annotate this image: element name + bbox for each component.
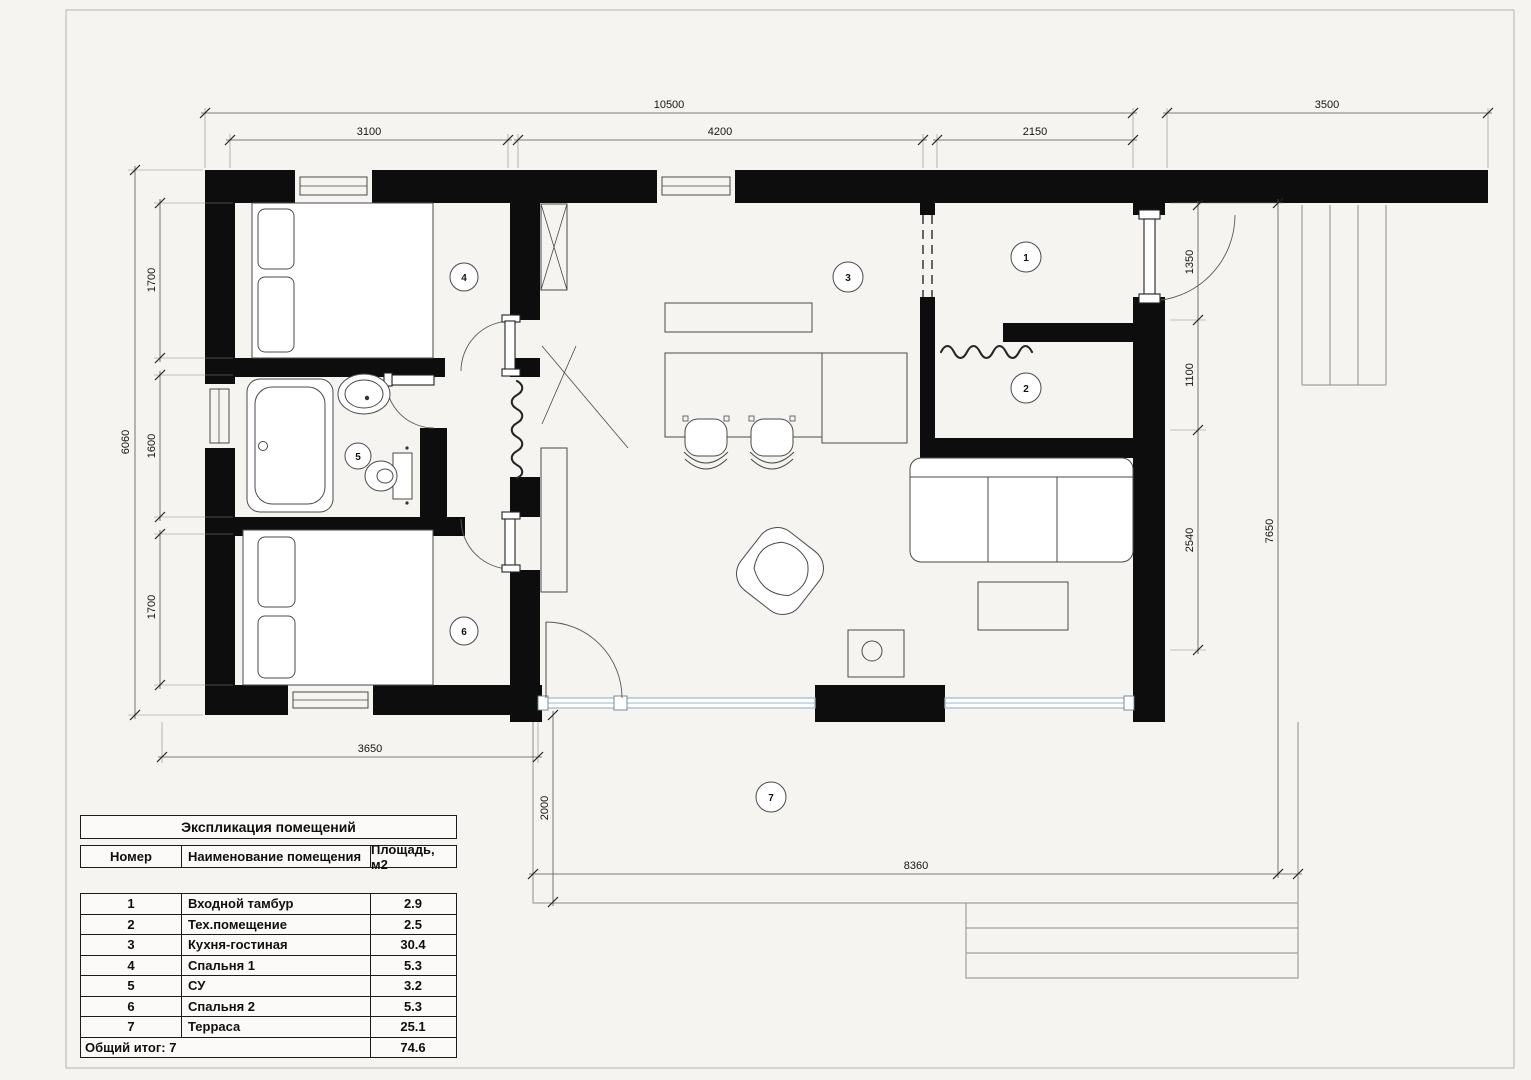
opening-dashed [923,215,932,297]
room-name-cell: Спальня 1 [182,956,371,976]
table-total-row: Общий итог: 7 74.6 [81,1038,456,1058]
table-row: 4 Спальня 1 5.3 [81,956,456,977]
pillow [258,537,295,607]
dim-3650: 3650 [358,743,382,755]
dim-1600: 1600 [146,434,158,458]
dim-1350: 1350 [1184,250,1196,274]
room-area-cell: 30.4 [371,935,455,955]
drawing-sheet: 1 2 3 4 5 6 7 [0,0,1531,1080]
room-area-cell: 2.5 [371,915,455,935]
room-marker-3: 3 [833,262,863,292]
leaf-diagonal [542,346,576,424]
legend-header: Номер Наименование помещения Площадь, м2 [80,845,457,868]
total-label: Общий итог: 7 [81,1038,371,1058]
room-number: 3 [845,273,851,284]
room-number: 4 [461,273,467,284]
dim-3100: 3100 [357,126,381,138]
wardrobe [541,448,567,592]
sink [338,374,390,414]
legend-title: Экспликация помещений [80,815,457,839]
dim-2150: 2150 [1023,126,1047,138]
toilet [365,446,412,504]
coffee-table [978,582,1068,630]
room-marker-5: 5 [345,443,371,469]
dim-2540: 2540 [1184,528,1196,552]
room-name-cell: СУ [182,976,371,996]
bed-1 [252,203,433,358]
room-name-cell: Кухня-гостиная [182,935,371,955]
opening-wave-techroom [941,346,1032,358]
opening-wave-corridor [512,381,523,478]
kitchen-counter [665,303,812,332]
dim-8360: 8360 [904,860,928,872]
pillow [258,277,294,352]
legend-col-number: Номер [81,846,182,867]
room-number: 2 [1023,384,1029,395]
pillow [258,209,294,269]
stove [848,630,904,677]
room-number-cell: 6 [81,997,182,1017]
bathtub [247,379,333,512]
pillow [258,616,295,678]
legend-col-name: Наименование помещения [182,846,371,867]
room-area-cell: 5.3 [371,997,455,1017]
room-number: 7 [768,793,774,804]
room-number-cell: 1 [81,894,182,914]
room-number-cell: 3 [81,935,182,955]
room-name-cell: Спальня 2 [182,997,371,1017]
armchair [728,519,832,623]
room-name-cell: Тех.помещение [182,915,371,935]
room-marker-2: 2 [1011,373,1041,403]
table-row: 1 Входной тамбур 2.9 [81,894,456,915]
dim-7650: 7650 [1264,519,1276,543]
dim-6060: 6060 [120,430,132,454]
table-row: 6 Спальня 2 5.3 [81,997,456,1018]
door-bathroom [384,373,434,428]
bar-stool [683,416,729,469]
room-area-cell: 3.2 [371,976,455,996]
room-number: 1 [1023,253,1029,264]
bar-stool [749,416,795,469]
sofa [910,458,1133,562]
room-number-cell: 2 [81,915,182,935]
dim-3500: 3500 [1315,99,1339,111]
room-marker-6: 6 [450,617,478,645]
legend-body: 1 Входной тамбур 2.9 2 Тех.помещение 2.5… [80,893,457,1058]
room-marker-4: 4 [450,263,478,291]
room-number-cell: 7 [81,1017,182,1037]
bed-2 [243,530,433,685]
table-row: 5 СУ 3.2 [81,976,456,997]
room-number: 5 [355,452,361,463]
terrace [533,205,1386,978]
total-value: 74.6 [371,1038,455,1058]
room-name-cell: Терраса [182,1017,371,1037]
room-marker-1: 1 [1011,242,1041,272]
room-area-cell: 25.1 [371,1017,455,1037]
legend-col-area: Площадь, м2 [371,846,455,867]
door-terrace [546,622,622,698]
door-bedroom-1 [461,315,520,376]
wardrobe-x [541,204,567,290]
room-marker-7: 7 [756,782,786,812]
dim-2000: 2000 [539,796,551,820]
terrace-steps-right [1302,205,1386,385]
room-area-cell: 2.9 [371,894,455,914]
table-row: 7 Терраса 25.1 [81,1017,456,1038]
table-row: 3 Кухня-гостиная 30.4 [81,935,456,956]
dim-10500: 10500 [654,99,685,111]
leaf-diagonal [542,346,628,448]
terrace-steps-bottom [966,903,1298,978]
dim-1100: 1100 [1184,363,1196,387]
dim-1700b: 1700 [146,595,158,619]
table-row: 2 Тех.помещение 2.5 [81,915,456,936]
room-name-cell: Входной тамбур [182,894,371,914]
dim-1700a: 1700 [146,268,158,292]
room-number-cell: 5 [81,976,182,996]
door-bedroom-2 [461,512,520,572]
room-number: 6 [461,627,467,638]
room-number-cell: 4 [81,956,182,976]
room-area-cell: 5.3 [371,956,455,976]
dim-4200: 4200 [708,126,732,138]
